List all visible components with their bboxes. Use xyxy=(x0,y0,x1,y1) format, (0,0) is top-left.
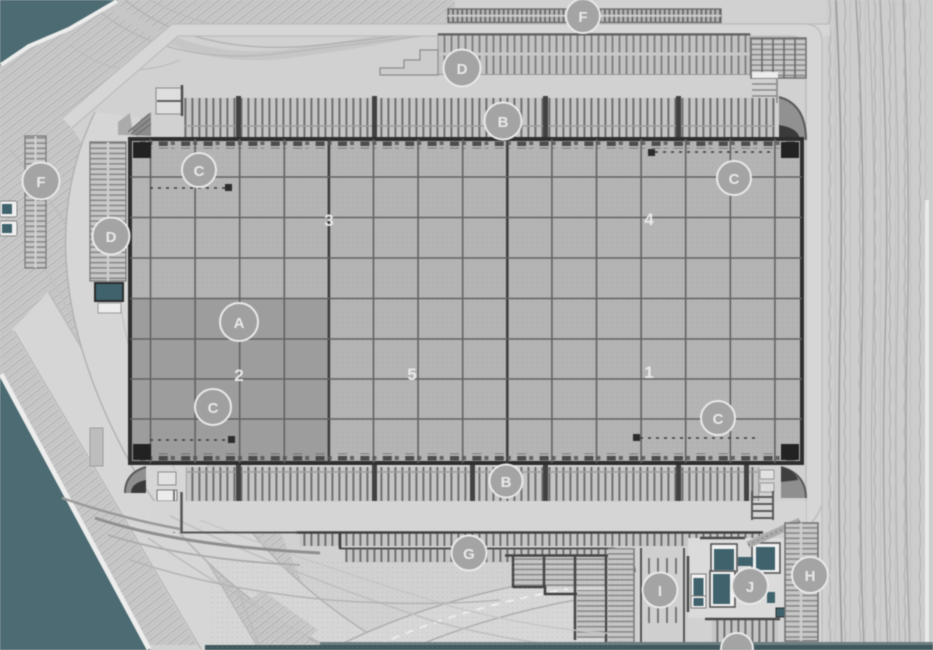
svg-text:H: H xyxy=(805,568,816,585)
svg-text:I: I xyxy=(658,583,662,600)
svg-text:F: F xyxy=(36,174,45,191)
svg-text:C: C xyxy=(713,411,724,428)
svg-text:F: F xyxy=(578,9,587,26)
svg-text:4: 4 xyxy=(644,210,654,229)
svg-text:A: A xyxy=(234,315,245,332)
svg-text:B: B xyxy=(498,114,509,131)
svg-text:D: D xyxy=(457,61,468,78)
svg-text:3: 3 xyxy=(324,211,333,230)
svg-text:C: C xyxy=(729,171,740,188)
svg-text:1: 1 xyxy=(644,363,653,382)
svg-text:B: B xyxy=(501,474,512,491)
svg-text:D: D xyxy=(106,229,117,246)
svg-text:5: 5 xyxy=(407,365,416,384)
svg-text:J: J xyxy=(746,579,754,596)
svg-text:2: 2 xyxy=(234,366,243,385)
svg-text:G: G xyxy=(463,546,475,563)
svg-text:C: C xyxy=(194,163,205,180)
svg-text:C: C xyxy=(208,400,219,417)
